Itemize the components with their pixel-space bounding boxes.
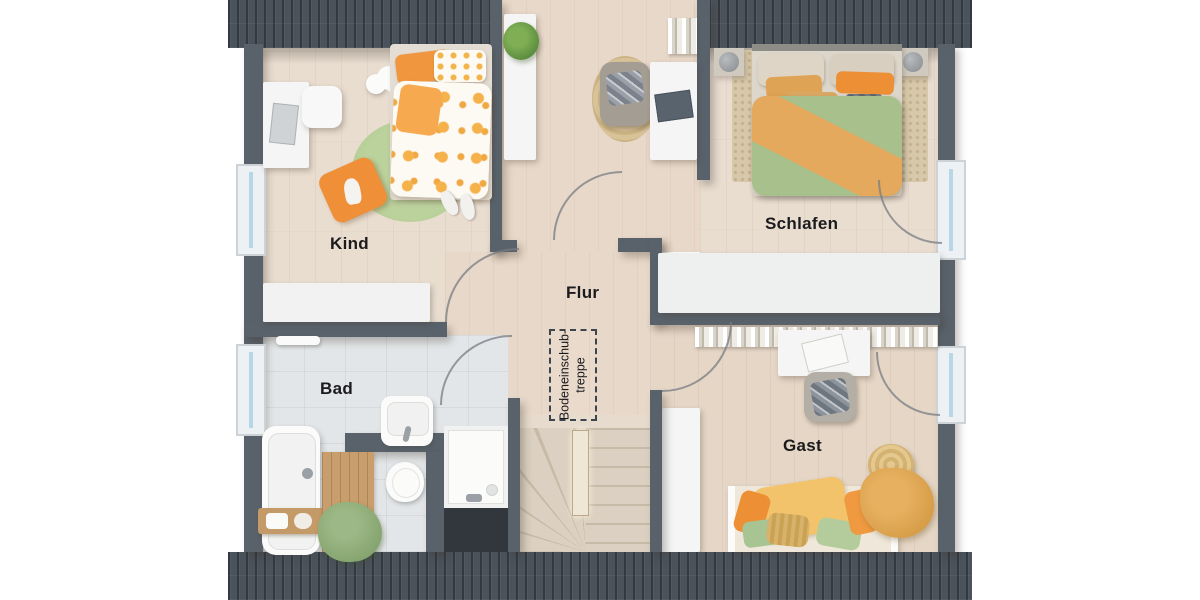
window-door-gast-right — [938, 348, 964, 422]
stair-cabinet — [662, 408, 700, 552]
toilet — [384, 458, 426, 504]
toilet-lid-line — [392, 468, 420, 498]
room-label-schlafen: Schlafen — [765, 214, 838, 234]
room-label-bad: Bad — [320, 379, 353, 399]
nightstand-left — [714, 48, 744, 76]
wall-kind-bad — [244, 322, 447, 337]
hall-desk — [650, 62, 697, 160]
window-glass — [249, 172, 253, 248]
kind-blanket-orange — [395, 83, 443, 136]
window-glass — [949, 353, 953, 417]
kind-bed — [390, 44, 492, 200]
roof-band-top-right — [700, 0, 972, 48]
bath-caddy — [258, 508, 324, 534]
window-kind-left — [238, 166, 264, 254]
schlafen-double-bed — [752, 44, 902, 196]
headboard — [752, 44, 902, 51]
faucet-icon — [466, 494, 482, 502]
floor-plan: Bodeneinschub- treppe — [0, 0, 1200, 600]
loft-hatch-outline: Bodeneinschub- treppe — [549, 329, 597, 421]
wall-hall-schlafen — [697, 0, 710, 180]
kind-sideboard — [263, 283, 430, 322]
nightstand-right — [898, 48, 928, 76]
armchair-pillow — [809, 377, 850, 417]
bathtub — [262, 426, 320, 555]
room-label-kind: Kind — [330, 234, 369, 254]
gast-armchair — [804, 372, 856, 422]
kind-desk-chair — [302, 86, 342, 128]
schlafen-wardrobe — [658, 253, 940, 313]
shower-drain — [486, 484, 498, 496]
wall-hall-gast-lower — [650, 390, 662, 552]
gast-desk — [778, 330, 870, 376]
wall-bad-interior-v — [426, 452, 444, 552]
laptop-icon — [269, 103, 299, 145]
window-glass — [249, 352, 253, 428]
room-label-gast: Gast — [783, 436, 822, 456]
pillow-knit-tan — [765, 512, 810, 548]
towel-pile-green — [318, 502, 382, 562]
pillow-orange — [836, 71, 895, 95]
towel-roll — [294, 513, 312, 529]
window-bad-left — [238, 346, 264, 434]
hall-books — [668, 18, 697, 54]
towel-rail — [276, 336, 320, 345]
wall-bad-stairs — [508, 398, 520, 552]
towel-roll — [266, 513, 288, 529]
kind-bed-pillow-dotted — [434, 50, 486, 82]
loft-hatch-label-line2: treppe — [573, 330, 589, 420]
laptop-icon — [654, 90, 694, 123]
stair-newel — [572, 430, 589, 516]
faucet-icon — [302, 468, 313, 479]
laptop-icon — [801, 333, 849, 372]
window-glass — [949, 169, 953, 252]
stair-straight-steps — [586, 428, 650, 552]
toy-icon — [342, 177, 362, 205]
table-lamp-icon — [903, 52, 923, 72]
outer-wall-left — [244, 44, 263, 552]
table-lamp-icon — [719, 52, 739, 72]
roof-band-top-left — [228, 0, 502, 48]
loft-hatch-label-line1: Bodeneinschub- — [557, 330, 573, 420]
armchair-pillow — [605, 70, 645, 107]
room-label-flur: Flur — [566, 283, 599, 303]
winder-staircase — [520, 415, 650, 552]
potted-plant-icon — [503, 22, 539, 60]
washbasin — [381, 396, 433, 446]
loft-hatch-label: Bodeneinschub- treppe — [557, 330, 588, 420]
outer-wall-right — [938, 44, 955, 552]
shower-tray — [444, 426, 508, 508]
hall-armchair — [600, 62, 650, 126]
shower-niche — [444, 508, 508, 552]
